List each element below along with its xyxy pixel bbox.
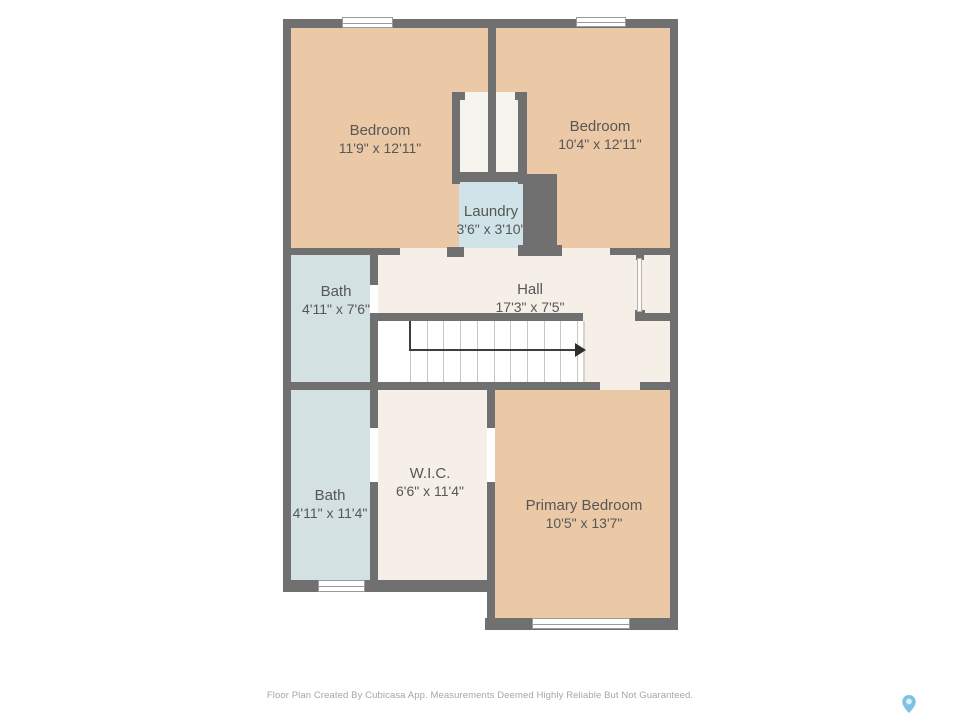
wall [283,19,291,592]
wall [452,92,465,100]
footer-disclaimer: Floor Plan Created By Cubicasa App. Meas… [0,690,960,701]
room-name: W.I.C. [396,464,464,483]
wall [518,92,527,184]
room-label-laundry: Laundry 3'6" x 3'10" [457,202,526,238]
window [342,17,393,28]
stair-tread-line [544,321,545,383]
closet-nook-left [460,92,488,177]
room-name: Bedroom [558,117,642,136]
wall [370,482,378,580]
window [318,580,365,592]
wall [370,254,378,285]
room-name: Primary Bedroom [526,496,643,515]
wall [518,245,562,256]
room-label-bedroom-2: Bedroom 10'4" x 12'11" [558,117,642,153]
stair-tread-line [443,321,444,383]
room-label-bedroom-1: Bedroom 11'9" x 12'11" [339,121,422,157]
stair-arrow-head-icon [575,343,586,357]
stair-arrow-start [409,321,411,351]
room-dimensions: 11'9" x 12'11" [339,140,422,157]
wall [452,172,527,182]
stair-arrow-line [409,349,575,351]
staircase [378,321,585,383]
room-label-wic: W.I.C. 6'6" x 11'4" [396,464,464,500]
stair-tread-line [494,321,495,383]
wall [515,92,527,100]
stair-tread-line [510,321,511,383]
wall [670,19,678,630]
wall [488,27,496,180]
room-dimensions: 4'11" x 7'6" [302,301,370,318]
room-label-hall: Hall 17'3" x 7'5" [496,280,565,316]
room-name: Bath [293,486,368,505]
room-label-primary-bedroom: Primary Bedroom 10'5" x 13'7" [526,496,643,532]
room-label-bath-lower: Bath 4'11" x 11'4" [293,486,368,522]
window [576,17,626,27]
wall [452,92,460,184]
stair-tread-line [427,321,428,383]
map-pin-icon [902,695,916,713]
room-dimensions: 10'5" x 13'7" [526,515,643,532]
wall [640,382,678,390]
wall [447,247,464,257]
room-dimensions: 6'6" x 11'4" [396,483,464,500]
wall [283,248,400,255]
room-label-bath-upper: Bath 4'11" x 7'6" [302,282,370,318]
floor-plan-canvas: Laundry 3'6" x 3'10" Bedroom 11'9" x 12'… [0,0,960,720]
wall [370,313,378,390]
wall [370,390,378,428]
room-bath-upper [291,254,370,383]
closet-nook-right [495,92,519,177]
room-name: Bedroom [339,121,422,140]
stair-tread-line [477,321,478,383]
wall [635,313,678,321]
stair-tread-line [527,321,528,383]
stair-tread-line [460,321,461,383]
wall [283,580,495,592]
room-name: Bath [302,282,370,301]
wall [487,482,495,630]
room-dimensions: 4'11" x 11'4" [293,505,368,522]
room-name: Hall [496,280,565,299]
room-dimensions: 3'6" x 3'10" [457,221,526,238]
window [532,618,630,629]
closet-door-leaf [637,258,642,312]
wall [487,390,495,428]
stair-tread-line [560,321,561,383]
wall-chase [523,174,557,255]
room-name: Laundry [457,202,526,221]
room-dimensions: 10'4" x 12'11" [558,136,642,153]
wall [610,248,678,255]
wall [283,382,600,390]
room-dimensions: 17'3" x 7'5" [496,299,565,316]
